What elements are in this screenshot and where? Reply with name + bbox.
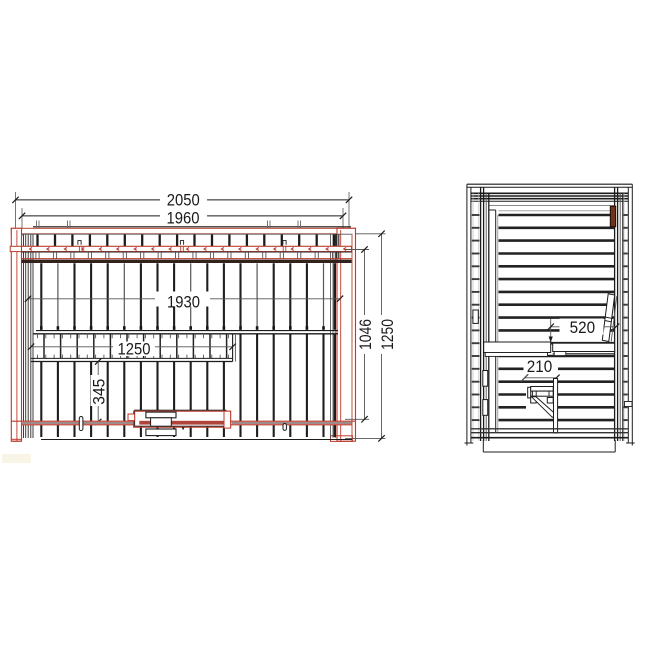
svg-text:1046: 1046 — [356, 319, 375, 350]
svg-text:1960: 1960 — [167, 209, 200, 228]
svg-text:210: 210 — [527, 357, 553, 376]
svg-text:2050: 2050 — [167, 191, 200, 210]
svg-text:520: 520 — [570, 318, 596, 337]
svg-text:1250: 1250 — [118, 340, 151, 359]
svg-text:345: 345 — [89, 379, 108, 405]
svg-text:1250: 1250 — [378, 319, 397, 350]
svg-text:1930: 1930 — [167, 292, 200, 311]
